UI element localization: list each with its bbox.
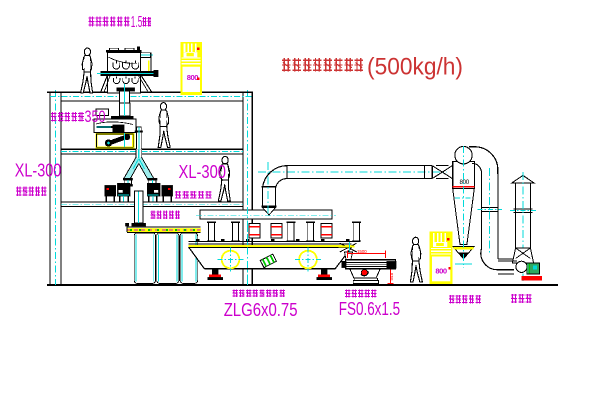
svg-text:1500: 1500 [357, 249, 367, 254]
svg-text:800: 800 [187, 73, 198, 82]
svg-text:FS0.6x1.5: FS0.6x1.5 [339, 298, 400, 319]
svg-text:XL-300: XL-300 [15, 161, 62, 181]
svg-text:ZLG6x0.75: ZLG6x0.75 [224, 299, 298, 320]
svg-text:(500kg/h): (500kg/h) [367, 54, 463, 81]
svg-text:800: 800 [460, 179, 470, 186]
svg-text:1.5: 1.5 [131, 14, 143, 31]
svg-text:XL-300: XL-300 [179, 162, 227, 182]
svg-text:800: 800 [435, 267, 446, 276]
svg-text:350: 350 [85, 107, 106, 126]
svg-text:548: 548 [389, 272, 394, 280]
